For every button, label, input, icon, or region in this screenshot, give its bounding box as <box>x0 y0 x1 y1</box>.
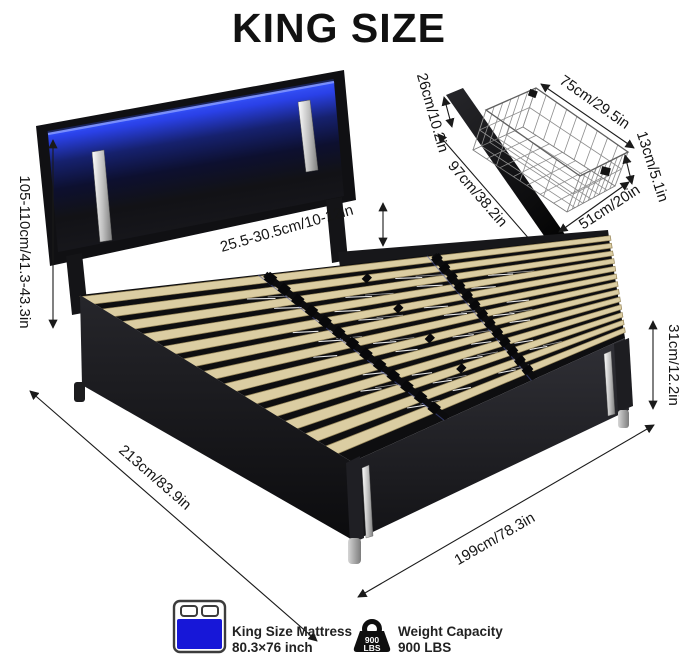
pillow-shape <box>202 606 218 616</box>
bed-base <box>74 230 633 564</box>
weight-capacity-label: Weight Capacity <box>398 624 503 639</box>
mattress-icon <box>174 601 225 652</box>
bed-foot-front <box>348 538 361 564</box>
dimension-line-basket-height <box>625 155 632 184</box>
weight-capacity-value: 900 LBS <box>398 640 451 654</box>
basket-clip <box>528 89 538 98</box>
diagram-canvas: KING SIZE 26cm/10.2in 75cm/29.5in 13cm/5… <box>0 0 679 654</box>
bed-diagram: 105-110cm/41.3-43.3in 25.5-30.5cm/10-12i… <box>16 70 679 641</box>
pillow-shape <box>181 606 197 616</box>
dimension-total-height: 105-110cm/41.3-43.3in <box>16 175 33 328</box>
mattress-size-value: 80.3×76 inch <box>232 640 313 654</box>
bed-foot-right <box>618 410 629 428</box>
dimension-base-height: 31cm/12.2in <box>665 324 679 406</box>
page-title: KING SIZE <box>232 5 446 51</box>
weight-icon: 900 LBS <box>354 622 390 654</box>
product-dimension-diagram: KING SIZE 26cm/10.2in 75cm/29.5in 13cm/5… <box>0 0 679 654</box>
dimension-width: 199cm/78.3in <box>452 509 538 569</box>
mattress-label: King Size Mattress <box>232 624 352 639</box>
weight-badge-bottom: LBS <box>364 643 381 653</box>
dimension-length: 213cm/83.9in <box>115 442 194 514</box>
mattress-blue-area <box>177 619 222 649</box>
legend: King Size Mattress 80.3×76 inch 900 LBS … <box>174 601 503 654</box>
dimension-panel-height: 26cm/10.2in <box>413 71 452 154</box>
bed-foot-left <box>74 382 85 402</box>
